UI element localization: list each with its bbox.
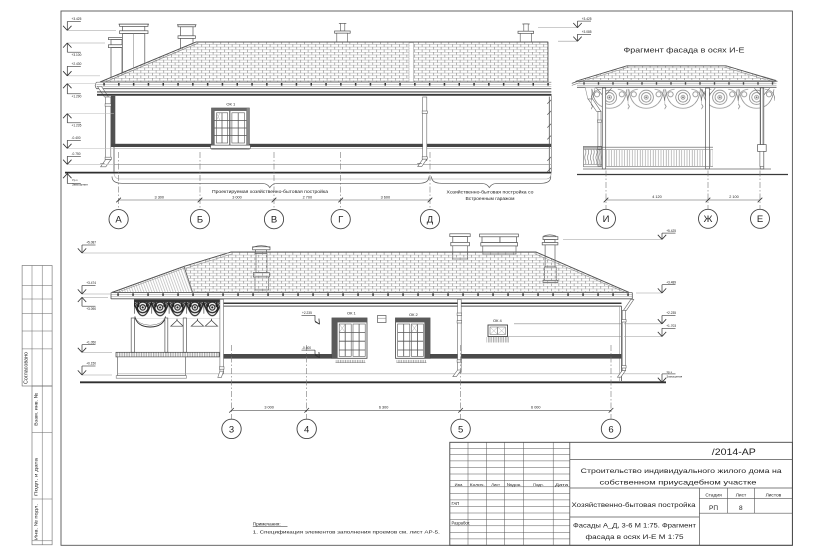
svg-text:Б: Б [197,215,203,226]
svg-text:Стадия: Стадия [705,493,722,499]
svg-text:3 300: 3 300 [155,195,165,199]
svg-text:6 000: 6 000 [531,405,541,409]
svg-text:3 600: 3 600 [381,195,391,199]
svg-text:Изм.: Изм. [455,482,464,487]
svg-text:+3.100: +3.100 [72,53,82,57]
svg-text:Фасады А_Д, 3-6 М 1:75. Фрагме: Фасады А_Д, 3-6 М 1:75. Фрагмент [573,522,696,529]
svg-text:Д: Д [427,215,434,226]
svg-text:+2.430: +2.430 [72,62,82,66]
svg-text:/2014-АР: /2014-АР [712,447,756,457]
svg-text:3: 3 [229,424,234,435]
svg-text:Подп. и дата: Подп. и дата [33,458,39,496]
svg-text:Хозяйственно-бытовая постройка: Хозяйственно-бытовая постройка [572,501,697,509]
svg-text:Ж: Ж [704,214,713,225]
svg-text:+3.085: +3.085 [582,30,592,34]
svg-text:Согласовано: Согласовано [24,352,30,384]
svg-text:№док.: №док. [507,482,522,487]
svg-text:В: В [271,215,277,226]
svg-text:6: 6 [608,424,613,435]
svg-text:Листов: Листов [766,493,782,499]
svg-text:+5.425: +5.425 [666,229,676,233]
svg-text:3 000: 3 000 [232,195,242,199]
svg-text:Примечания:: Примечания: [253,521,281,526]
svg-text:+2.235: +2.235 [666,311,676,315]
svg-text:+2.235: +2.235 [302,311,312,315]
svg-text:5: 5 [458,424,463,435]
svg-text:собственном приусадебном участ: собственном приусадебном участке [600,478,757,486]
svg-text:8: 8 [739,505,743,512]
svg-text:+3.489: +3.489 [666,280,676,284]
svg-text:Е: Е [757,214,763,225]
svg-text:Г: Г [338,215,343,226]
svg-text:-0.400: -0.400 [72,136,81,140]
svg-text:Ур.з: Ур.з [72,178,78,182]
svg-text:Лист: Лист [491,482,500,487]
svg-text:6 300: 6 300 [379,405,389,409]
svg-text:Разработ.: Разработ. [452,521,471,526]
svg-text:3 000: 3 000 [264,405,274,409]
svg-text:Взам. инв. №: Взам. инв. № [33,393,39,426]
svg-text:+1.235: +1.235 [72,123,82,127]
svg-text:РП: РП [709,505,718,512]
svg-text:+1.050: +1.050 [86,340,96,344]
svg-text:Встроенным гаражом: Встроенным гаражом [466,196,515,201]
svg-text:Строительство индивидуального: Строительство индивидуального жилого дом… [581,468,782,475]
svg-text:-0.750: -0.750 [72,152,81,156]
svg-text:Ур.з: Ур.з [667,370,673,374]
svg-text:ОК 1: ОК 1 [347,311,357,316]
svg-text:Инв. № подл.: Инв. № подл. [33,504,39,540]
svg-text:Замощения: Замощения [72,183,88,187]
svg-text:ОК 1: ОК 1 [226,101,236,106]
svg-text:фасада в осях И-Е М 1:75: фасада в осях И-Е М 1:75 [586,534,685,541]
svg-text:+3.425: +3.425 [72,17,82,21]
svg-text:+3.474: +3.474 [86,281,96,285]
svg-text:+1.290: +1.290 [72,94,82,98]
svg-text:+1.703: +1.703 [666,324,676,328]
svg-text:И: И [603,214,610,225]
svg-text:Замощения: Замощения [667,375,683,379]
svg-text:4 120: 4 120 [652,195,662,199]
svg-text:1. Спецификация элементов запо: 1. Спецификация элементов заполнения про… [253,530,440,535]
svg-text:ГАП: ГАП [452,501,460,506]
svg-text:А: А [115,215,122,226]
svg-text:ОК 4: ОК 4 [493,318,503,323]
svg-text:Дата: Дата [555,482,569,487]
svg-text:+0.150: +0.150 [86,362,96,366]
svg-text:ОК 2: ОК 2 [409,312,419,317]
svg-text:2 700: 2 700 [303,195,313,199]
svg-text:Проектируемая хозяйственно-быт: Проектируемая хозяйственно-бытовая постр… [212,189,329,194]
svg-text:2 100: 2 100 [729,195,739,199]
svg-text:Подп.: Подп. [533,482,544,487]
svg-text:+3.425: +3.425 [582,17,592,21]
svg-text:Колич.: Колич. [470,482,485,487]
svg-text:Лист: Лист [736,493,747,499]
svg-text:+3.090: +3.090 [86,307,96,311]
svg-text:Фрагмент фасада в осях И-Е: Фрагмент фасада в осях И-Е [624,46,745,55]
svg-text:+5.087: +5.087 [86,241,96,245]
svg-text:Хозяйственно-бытовая постройка: Хозяйственно-бытовая постройка со [447,190,535,195]
svg-text:4: 4 [304,424,309,435]
